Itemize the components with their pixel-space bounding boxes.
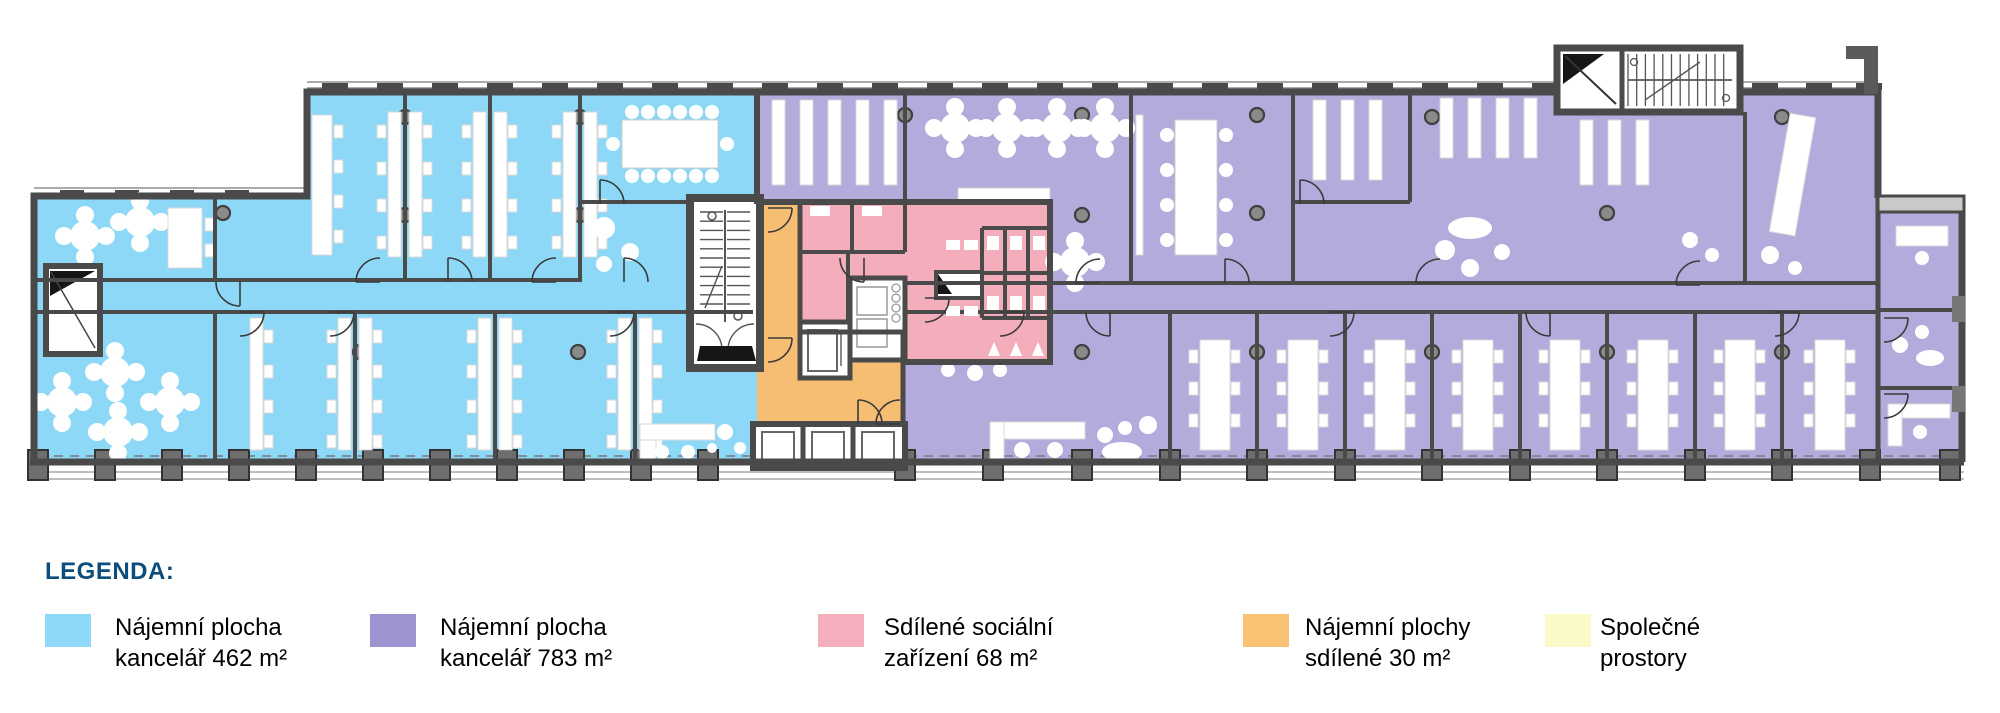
legend-item-offices-783: Nájemní plochakancelář 783 m² bbox=[370, 614, 612, 674]
secondary-stairwell bbox=[1557, 48, 1740, 112]
legend-item-offices-462: Nájemní plochakancelář 462 m² bbox=[45, 614, 287, 674]
legend-label: Nájemní plochysdílené 30 m² bbox=[1305, 612, 1470, 674]
legend-swatch-orange bbox=[1243, 614, 1289, 647]
legend-title: LEGENDA: bbox=[45, 558, 174, 586]
legend-swatch-blue bbox=[45, 614, 91, 647]
legend-item-sanitary: Sdílené sociálnízařízení 68 m² bbox=[818, 614, 1053, 674]
floor-plan-page: LEGENDA: Nájemní plochakancelář 462 m² N… bbox=[0, 0, 2000, 713]
legend-swatch-yellow bbox=[1545, 614, 1591, 647]
legend: LEGENDA: Nájemní plochakancelář 462 m² N… bbox=[0, 530, 2000, 713]
legend-label: Sdílené sociálnízařízení 68 m² bbox=[884, 612, 1053, 674]
main-stairwell bbox=[690, 198, 760, 368]
legend-label: Společnéprostory bbox=[1600, 612, 1700, 674]
shower-room bbox=[850, 278, 905, 360]
legend-label: Nájemní plochakancelář 462 m² bbox=[115, 612, 287, 674]
legend-label: Nájemní plochakancelář 783 m² bbox=[440, 612, 612, 674]
legend-item-shared: Nájemní plochysdílené 30 m² bbox=[1243, 614, 1470, 674]
entry-mat bbox=[697, 346, 756, 361]
floor-plan bbox=[0, 0, 2000, 530]
legend-swatch-pink bbox=[818, 614, 864, 647]
legend-swatch-purple bbox=[370, 614, 416, 647]
legend-item-common: Společnéprostory bbox=[1545, 614, 1700, 674]
